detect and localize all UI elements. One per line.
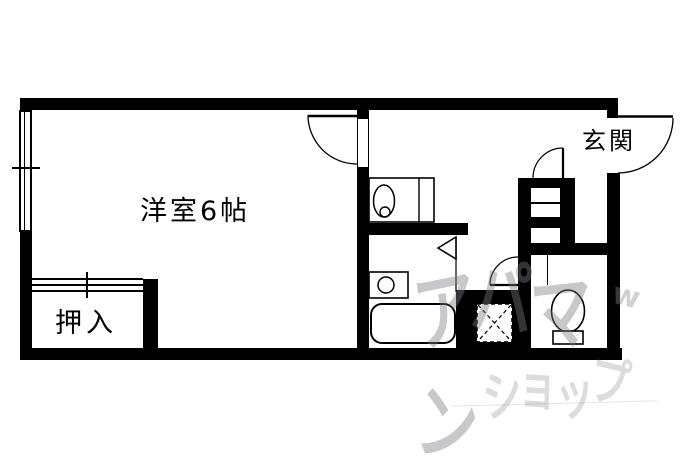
bathtub-fixture	[371, 304, 455, 343]
toilet-fixture	[552, 290, 585, 344]
bathroom-sink-fixture	[369, 272, 408, 298]
folding-bath-door-icon	[438, 237, 456, 259]
washbasin-vanity-fixture	[369, 178, 434, 222]
laundry-pan-fixture	[477, 304, 512, 342]
wc-door	[490, 257, 518, 285]
entry-door	[618, 117, 673, 174]
floorplan-canvas: 洋室6帖 押入 玄関 アパマン ショップ w	[0, 0, 690, 460]
room-door	[308, 115, 357, 164]
fixtures-layer	[0, 0, 690, 460]
hall-door	[533, 148, 563, 178]
